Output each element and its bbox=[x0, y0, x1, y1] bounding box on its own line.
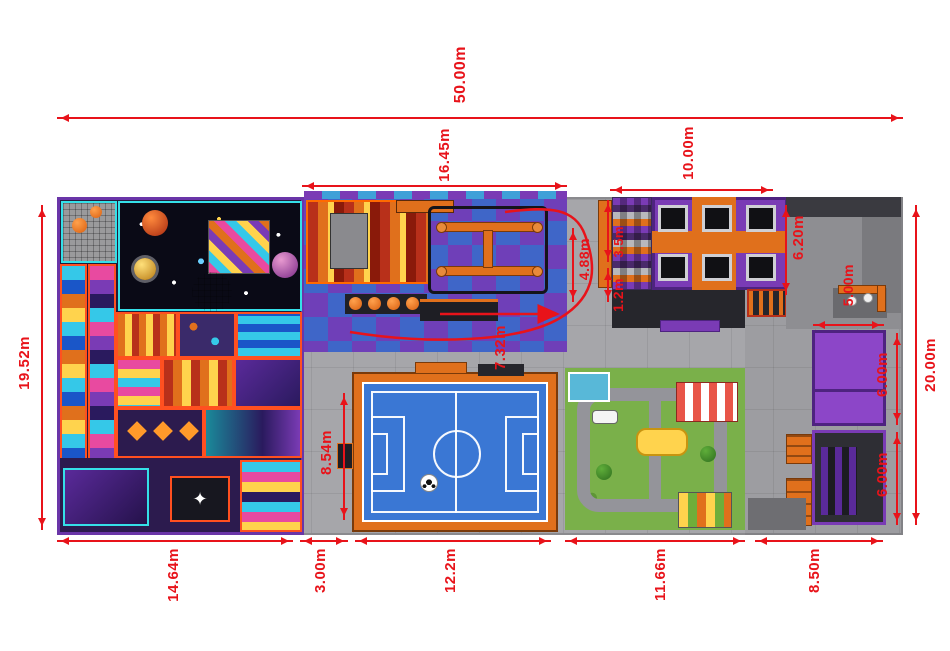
route-curve bbox=[350, 209, 592, 339]
goal-box-right bbox=[522, 433, 539, 475]
dim-label-ninja-width: 16.45m bbox=[436, 128, 453, 182]
play-cell-stripes bbox=[236, 312, 302, 358]
dim-label-ninja-inner: 4.88m bbox=[576, 238, 592, 280]
dim-line-lower-room bbox=[896, 432, 898, 525]
tree-decor bbox=[700, 446, 716, 462]
kids-kiosk bbox=[678, 492, 732, 528]
slide-lane bbox=[88, 264, 116, 460]
pitch-center-circle bbox=[433, 430, 481, 478]
trampoline-step bbox=[660, 320, 720, 332]
soccer-ball bbox=[420, 474, 438, 492]
dim-line-softplay-width bbox=[57, 540, 293, 542]
dim-line-upper-room bbox=[896, 333, 898, 425]
trampoline-walkway-horizontal bbox=[652, 231, 788, 253]
dim-line-total-width bbox=[57, 117, 903, 119]
net-climb-panel bbox=[61, 201, 117, 263]
planet-decor bbox=[142, 210, 168, 236]
dim-line-wall-ledge bbox=[607, 200, 609, 262]
star-icon: ✦ bbox=[192, 489, 207, 510]
dim-label-upper-room: 6.00m bbox=[874, 352, 891, 397]
dim-label-right-height: 20.00m bbox=[922, 338, 939, 392]
dim-line-kids-width bbox=[565, 540, 745, 542]
trampoline-bed bbox=[658, 205, 688, 232]
play-cell-purple bbox=[234, 358, 302, 408]
right-top-wall bbox=[786, 197, 901, 217]
kids-ball-pool bbox=[568, 372, 610, 402]
play-ball bbox=[72, 218, 87, 233]
dim-line-trampoline-side bbox=[785, 205, 787, 295]
pitch-field bbox=[362, 382, 548, 522]
kids-car bbox=[592, 410, 618, 424]
dim-label-corridor-width: 3.00m bbox=[312, 548, 329, 593]
play-cell-balls bbox=[178, 312, 236, 358]
play-cell-rainbow bbox=[116, 358, 162, 408]
ladder bbox=[747, 289, 787, 317]
dim-label-lower-room: 6.00m bbox=[874, 452, 891, 497]
dim-label-bench-row: 5.00m bbox=[840, 264, 856, 306]
saturn-decor bbox=[134, 258, 156, 280]
dim-label-track-length: 7.32m bbox=[492, 325, 509, 370]
trampoline-bed bbox=[746, 254, 776, 281]
play-cell-flame2 bbox=[162, 358, 234, 408]
dim-line-trampoline-width bbox=[610, 189, 773, 191]
play-ball bbox=[90, 206, 102, 218]
dim-label-ledge-width: 1.2m bbox=[610, 278, 626, 312]
star-panel: ✦ bbox=[170, 476, 230, 522]
trampoline-bed bbox=[746, 205, 776, 232]
dim-line-ninja-inner bbox=[572, 228, 574, 302]
dim-line-corridor-width bbox=[300, 540, 348, 542]
dim-label-total-width: 50.00m bbox=[452, 46, 470, 103]
round-table bbox=[863, 293, 873, 303]
dim-line-pitch-height bbox=[343, 393, 345, 520]
dim-label-pitch-width: 12.2m bbox=[442, 548, 459, 593]
dim-line-left-height bbox=[41, 205, 43, 530]
dim-line-right-height bbox=[915, 205, 917, 525]
dim-label-kids-width: 11.66m bbox=[652, 548, 669, 601]
trampoline-bed bbox=[702, 254, 732, 281]
party-room-slats bbox=[821, 447, 857, 515]
play-cell-flame bbox=[116, 312, 178, 358]
dim-label-pitch-height: 8.54m bbox=[318, 430, 335, 475]
dim-line-right-width bbox=[755, 540, 883, 542]
dim-line-pitch-width bbox=[355, 540, 551, 542]
dim-line-ledge-width bbox=[607, 268, 609, 302]
trampoline-bed bbox=[658, 254, 688, 281]
pitch-entry-block bbox=[337, 443, 353, 469]
dim-label-softplay-width: 14.64m bbox=[165, 548, 182, 602]
play-cell-mixed bbox=[204, 408, 302, 458]
dim-line-bench-row bbox=[813, 324, 884, 326]
dim-label-wall-ledge: 3.5m bbox=[611, 226, 626, 258]
dim-label-right-width: 8.50m bbox=[806, 548, 823, 593]
disco-ball-decor bbox=[192, 272, 232, 312]
slide-strip bbox=[240, 460, 302, 532]
dim-label-trampoline-side: 6.20m bbox=[790, 215, 807, 260]
dim-label-left-height: 19.52m bbox=[16, 336, 33, 390]
floor-plan-canvas: ✦ bbox=[0, 0, 950, 651]
toddler-panel bbox=[63, 468, 149, 526]
tree-decor bbox=[596, 464, 612, 480]
l-bench bbox=[877, 285, 886, 312]
trampoline-bed bbox=[702, 205, 732, 232]
kids-slide bbox=[636, 428, 688, 456]
bench-table bbox=[786, 434, 812, 464]
slide-lane bbox=[60, 264, 87, 460]
goal-box-left bbox=[371, 433, 388, 475]
party-room-divider bbox=[815, 389, 883, 392]
football-pitch bbox=[352, 372, 558, 532]
striped-awning-house bbox=[676, 382, 738, 422]
dim-label-trampoline-width: 10.00m bbox=[680, 126, 697, 180]
floor-mat bbox=[748, 498, 806, 530]
dim-line-ninja-width bbox=[302, 185, 567, 187]
planet-decor bbox=[272, 252, 298, 278]
patchwork-panel bbox=[208, 220, 270, 274]
